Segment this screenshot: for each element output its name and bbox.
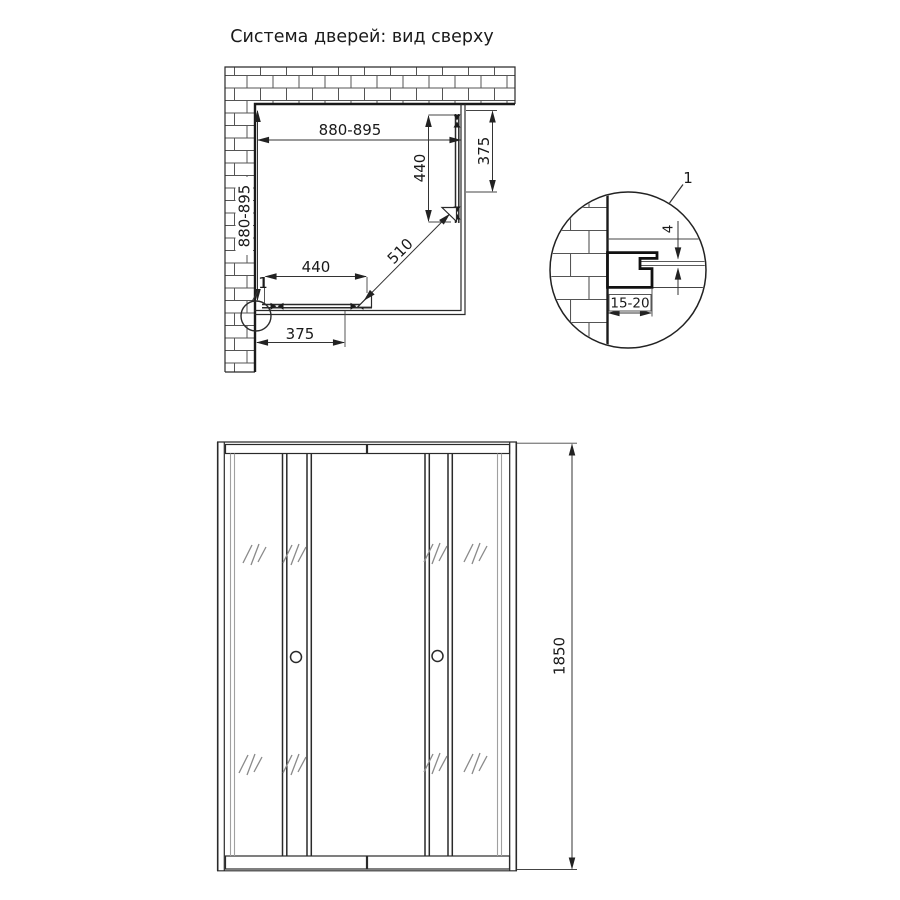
- bottom-rail-right: [368, 856, 510, 869]
- technical-drawing-page: Система дверей: вид сверху: [0, 0, 900, 900]
- dim-height: 1850: [517, 443, 577, 869]
- bottom-rail-left: [226, 856, 367, 869]
- sliding-door-bottom: [262, 293, 372, 310]
- dim-right-panel-label: 375: [475, 137, 493, 166]
- dim-right-door-label: 440: [411, 154, 429, 183]
- plan-view: 880-895 880-895 440 375 440: [225, 67, 515, 372]
- dim-bottom-panel: 375: [257, 311, 345, 347]
- dim-right-door: 440: [411, 115, 454, 222]
- dim-right-panel: 375: [466, 111, 497, 193]
- wall-outer-edge: [225, 67, 515, 372]
- dim-profile-depth-label: 15-20: [610, 296, 649, 312]
- glass-hatch-marks: [239, 543, 487, 775]
- dim-diagonal-label: 510: [384, 235, 417, 268]
- dim-bottom-door-label: 440: [302, 258, 331, 276]
- sliding-door-right: [442, 114, 461, 223]
- detail-view: 4 15-20 1: [550, 169, 706, 348]
- door-handle-left: [291, 652, 302, 663]
- detail-callout-label: 1: [683, 169, 693, 187]
- top-rail-left: [226, 445, 367, 454]
- drawing-title: Система дверей: вид сверху: [230, 27, 493, 47]
- detail-wall-brick: [550, 192, 608, 348]
- dim-depth-label: 880-895: [235, 185, 253, 248]
- detail-wall-profile: [608, 253, 658, 288]
- frame-outer-lines: [217, 442, 517, 871]
- frame-side-inner: [224, 442, 509, 871]
- door-handle-right: [432, 651, 443, 662]
- dim-width-label: 880-895: [319, 121, 382, 139]
- front-sliding-doors: [283, 454, 453, 857]
- dim-diagonal: 510: [365, 215, 450, 301]
- detail-callout-leader: [670, 185, 684, 204]
- fixed-panel-edges: [231, 454, 502, 857]
- dim-glass-thickness-label: 4: [661, 225, 677, 234]
- dim-height-label: 1850: [550, 637, 568, 675]
- dim-width: 880-895: [258, 121, 461, 140]
- wall-brick-top: [225, 67, 515, 104]
- detail-ref-label: 1: [258, 274, 268, 292]
- top-rail-right: [368, 445, 510, 454]
- shower-door-drawing: Система дверей: вид сверху: [0, 0, 900, 900]
- frame-side-outer: [218, 442, 517, 871]
- dim-bottom-door: 440: [265, 258, 368, 303]
- front-view: 1850: [217, 442, 577, 871]
- dim-bottom-panel-label: 375: [286, 325, 315, 343]
